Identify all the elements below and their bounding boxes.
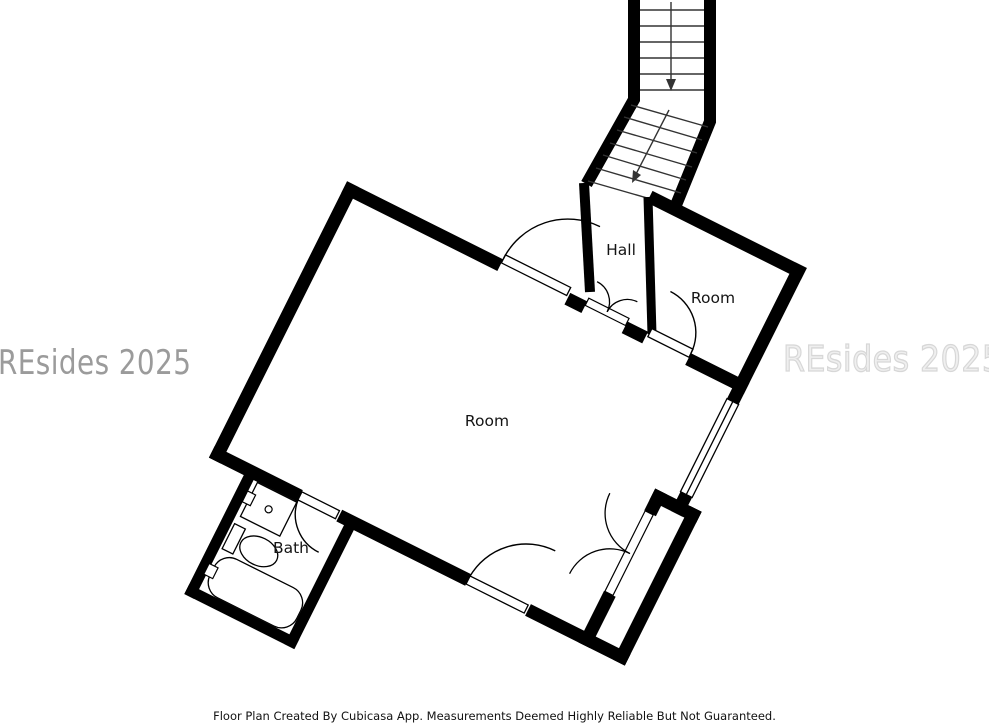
wall-top-a bbox=[344, 187, 500, 265]
door-arc-bottom bbox=[470, 522, 556, 606]
door-leaf-bottom bbox=[466, 576, 528, 613]
wall-left bbox=[215, 184, 353, 460]
door-leaf-bath bbox=[298, 492, 340, 519]
doors bbox=[281, 160, 758, 678]
hall-left-wall bbox=[584, 183, 590, 292]
closet-inner-wall-upper-stub bbox=[650, 491, 661, 513]
label-bath: Bath bbox=[273, 539, 309, 557]
hall-right-wall bbox=[648, 197, 652, 334]
closet-right-wall bbox=[619, 509, 696, 663]
window-center-line bbox=[686, 402, 733, 495]
stair-arrow-head-1 bbox=[666, 79, 676, 91]
wall-top-c bbox=[625, 327, 646, 337]
bath-right-wall bbox=[289, 516, 354, 646]
label-room-main: Room bbox=[465, 412, 509, 430]
door-leaf-top bbox=[501, 255, 570, 296]
wall-top-b bbox=[567, 299, 584, 307]
window bbox=[680, 399, 738, 498]
staircase bbox=[587, 0, 711, 210]
watermark-right: REsides 2025 bbox=[783, 342, 989, 378]
wall-bottom-c bbox=[528, 610, 628, 660]
stair-treads-straight bbox=[640, 10, 704, 90]
main-room-walls bbox=[209, 67, 820, 666]
wall-bottom-b bbox=[339, 516, 468, 580]
watermark-left: REsides 2025 bbox=[0, 346, 191, 380]
footer-disclaimer: Floor Plan Created By Cubicasa App. Meas… bbox=[0, 709, 989, 723]
upper-room-top-wall bbox=[650, 197, 804, 274]
rotated-plan bbox=[149, 67, 820, 728]
wall-right-and-upper-room-right bbox=[733, 265, 801, 401]
floor-plan-canvas: Hall Room Room Bath REsides 2025 REsides… bbox=[0, 0, 989, 728]
stair-left-wall bbox=[587, 0, 635, 184]
door-leaf-upper-room bbox=[648, 329, 693, 358]
label-room-upper-right: Room bbox=[691, 289, 735, 307]
label-hall: Hall bbox=[606, 241, 636, 259]
